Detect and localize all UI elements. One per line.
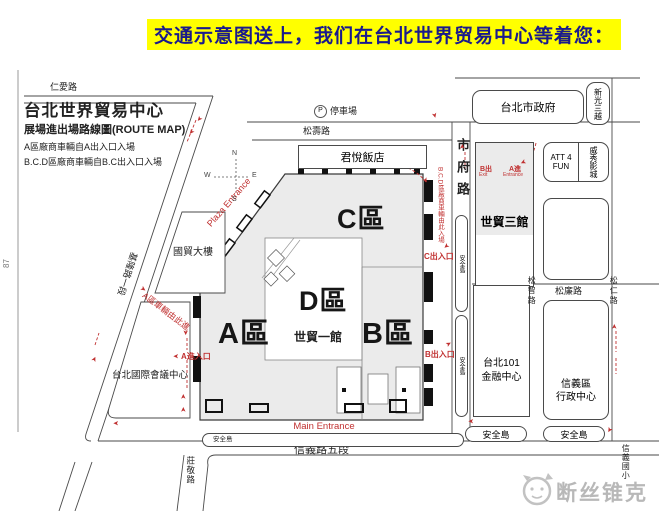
safety-island-long: 安全島: [202, 433, 464, 447]
watermark-logo-icon: [516, 472, 556, 510]
route-map-page: 交通示意图送上，我们在台北世界贸易中心等着您： 台北世界貿易中心 展場進出場路線…: [0, 0, 659, 511]
compass-n: N: [232, 150, 237, 158]
hall3-exit-en: Exit: [479, 172, 487, 178]
hall3-in-en: Entrance: [503, 172, 523, 178]
itb-label: 國貿大樓: [163, 247, 223, 259]
compass-s: S: [232, 196, 237, 204]
building-101: 台北101 金融中心: [473, 285, 530, 417]
road-label-renai: 仁愛路: [50, 82, 77, 92]
compass-e: E: [252, 172, 257, 180]
legend-note-a: A區廠商車輛自A出入口入場: [24, 142, 135, 152]
road-label-zhuangjing: 莊敬路: [185, 456, 195, 485]
hall1-label: 世貿一館: [289, 331, 347, 345]
road-label-songren: 松仁路: [609, 276, 618, 306]
route-arrow-icon: ➤: [113, 419, 119, 426]
route-arrow-icon: ➤: [611, 324, 618, 330]
main-entrance-label: Main Entrance: [289, 422, 359, 433]
legend-title: 台北世界貿易中心: [24, 102, 164, 121]
b-gate-label: B出入口: [425, 350, 455, 359]
safety-island-1: 安全島: [465, 426, 527, 442]
safety-island-label: 安全島: [213, 436, 233, 443]
ticc-label: 台北國際會議中心: [110, 371, 190, 382]
zone-a-label: A區: [218, 310, 270, 352]
c-gate-label: C出入口: [424, 252, 454, 261]
t101-line1: 台北101: [474, 354, 529, 369]
road-label-songlian: 松廉路: [555, 286, 582, 296]
road-label-songzhi: 松智路: [527, 276, 536, 306]
safety-island-2: 安全島: [543, 426, 605, 442]
parking-label: 停車場: [330, 106, 357, 116]
building-att: ATT 4 FUN 威秀影城: [543, 142, 609, 182]
parking-icon: P: [314, 105, 327, 118]
route-arrow-icon: ➤: [459, 144, 466, 150]
building-block-empty: [543, 198, 609, 280]
t101-line2: 金融中心: [474, 368, 529, 383]
route-arrow-icon: ➤: [180, 407, 187, 413]
admin-line2: 行政中心: [544, 388, 608, 403]
route-arrow-icon: ➤: [468, 417, 474, 424]
building-admin-center: 信義區 行政中心: [543, 300, 609, 420]
building-city-gov: 台北市政府: [472, 90, 584, 124]
hall3-label: 世貿三館: [476, 213, 533, 230]
compass-w: W: [204, 172, 211, 180]
legend-note-bcd: B.C.D區廠商車輛自B.C出入口入場: [24, 157, 162, 167]
watermark-text: 断丝锥克星: [556, 477, 659, 511]
building-hyatt: 君悅飯店: [298, 145, 427, 169]
a-gate-label: A進入口: [181, 352, 211, 361]
school-label: 信義國小: [621, 444, 630, 480]
map-edge-number: 87: [2, 259, 11, 268]
safety-island-v1: 安全島: [455, 215, 468, 312]
page-title-banner: 交通示意图送上，我们在台北世界贸易中心等着您：: [147, 19, 621, 50]
att-label: ATT 4 FUN: [544, 143, 578, 181]
zone-b-label: B區: [362, 310, 414, 352]
route-arrow-icon: ➤: [181, 330, 188, 336]
safety-island-v2: 安全島: [455, 315, 468, 417]
road-label-songshou: 松壽路: [303, 126, 330, 136]
zone-c-label: C區: [337, 197, 386, 236]
zone-d-label: D區: [299, 279, 348, 318]
legend-subtitle: 展場進出場路線圖(ROUTE MAP): [24, 124, 185, 137]
route-arrow-icon: ➤: [173, 352, 179, 359]
route-arrow-icon: ➤: [180, 394, 187, 400]
bcd-route-label: B.C.D區廠商車輛由此入場: [436, 167, 443, 243]
building-shinkong: 新光三越: [586, 82, 610, 125]
vieshow-label: 威秀影城: [578, 143, 608, 181]
